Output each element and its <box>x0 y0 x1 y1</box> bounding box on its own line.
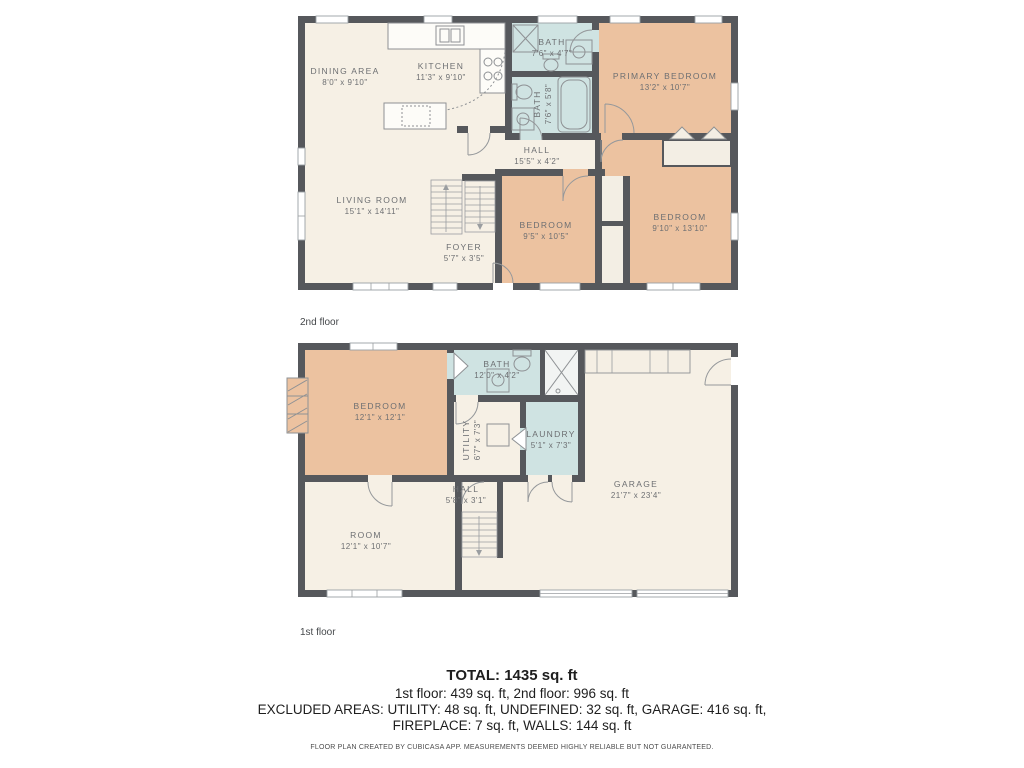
disclaimer-text: FLOOR PLAN CREATED BY CUBICASA APP. MEAS… <box>0 744 1024 751</box>
excluded-areas-text: EXCLUDED AREAS: UTILITY: 48 sq. ft, UNDE… <box>0 703 1024 717</box>
floor-plan-page: DINING AREA 8'0" x 9'10" KITCHEN 11'3" x… <box>0 0 1024 768</box>
first-floor-plan <box>287 343 738 597</box>
fireplace-icon <box>287 378 308 433</box>
floor-areas-text: 1st floor: 439 sq. ft, 2nd floor: 996 sq… <box>0 687 1024 701</box>
excluded-areas-text2: FIREPLACE: 7 sq. ft, WALLS: 144 sq. ft <box>0 719 1024 733</box>
garage-cabinets-icon <box>585 350 690 373</box>
floor-caption-2nd: 2nd floor <box>300 317 339 328</box>
stairs-icon <box>462 512 497 557</box>
room-fills <box>305 350 731 590</box>
floor-caption-1st: 1st floor <box>300 627 336 638</box>
area-summary: TOTAL: 1435 sq. ft 1st floor: 439 sq. ft… <box>0 667 1024 751</box>
floorplan-graphics <box>0 0 1024 768</box>
total-area-text: TOTAL: 1435 sq. ft <box>0 667 1024 684</box>
second-floor-plan <box>298 16 738 290</box>
